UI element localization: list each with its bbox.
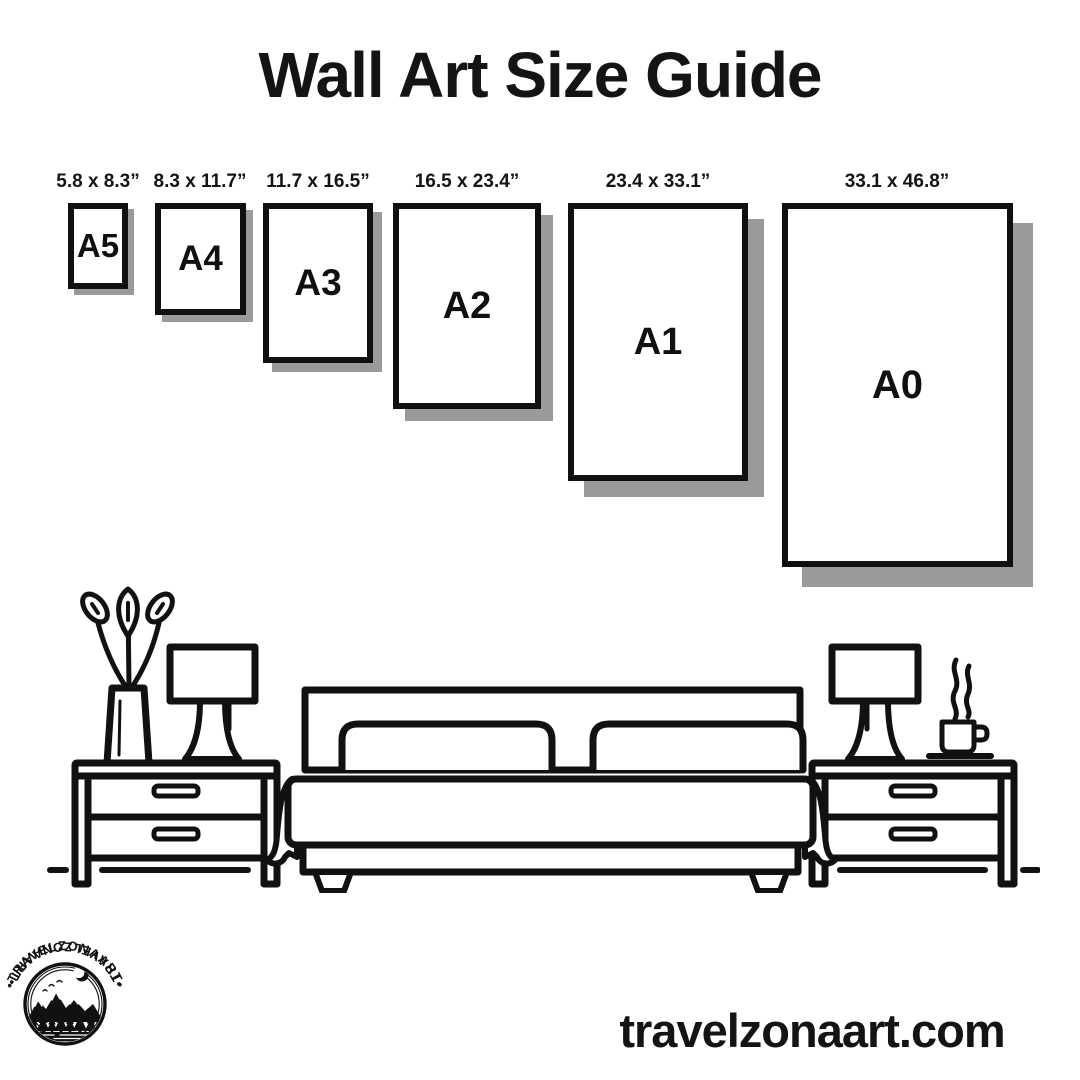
bedroom-scene xyxy=(40,583,1040,893)
size-code-a3: A3 xyxy=(294,262,341,304)
paper-a2: A2 xyxy=(393,203,541,409)
dim-label-a0: 33.1 x 46.8” xyxy=(787,171,1007,193)
nightstand-icon xyxy=(75,763,277,884)
plant-icon xyxy=(78,589,178,763)
dim-label-a1: 23.4 x 33.1” xyxy=(548,171,768,193)
paper-a0: A0 xyxy=(782,203,1013,567)
size-code-a0: A0 xyxy=(872,363,923,408)
coffee-cup-icon xyxy=(929,722,991,756)
table-lamp-icon xyxy=(832,647,918,759)
page-title: Wall Art Size Guide xyxy=(0,38,1080,112)
steam-icon xyxy=(953,660,969,719)
brand-logo: •TRAVELZONAART• •TRAVELZONAART• xyxy=(2,928,128,1080)
paper-a3: A3 xyxy=(263,203,373,363)
size-code-a2: A2 xyxy=(443,285,492,328)
size-code-a1: A1 xyxy=(634,321,683,364)
size-code-a4: A4 xyxy=(178,239,223,279)
paper-a1: A1 xyxy=(568,203,748,481)
bed-icon xyxy=(267,690,835,891)
nightstand-icon xyxy=(812,763,1014,884)
table-lamp-icon xyxy=(170,647,255,759)
dim-label-a2: 16.5 x 23.4” xyxy=(357,171,577,193)
size-guide-poster: Wall Art Size Guide 5.8 x 8.3” 8.3 x 11.… xyxy=(0,0,1080,1080)
size-code-a5: A5 xyxy=(77,227,119,265)
paper-a4: A4 xyxy=(155,203,246,315)
website-url: travelzonaart.com xyxy=(562,1003,1062,1058)
paper-a5: A5 xyxy=(68,203,128,289)
